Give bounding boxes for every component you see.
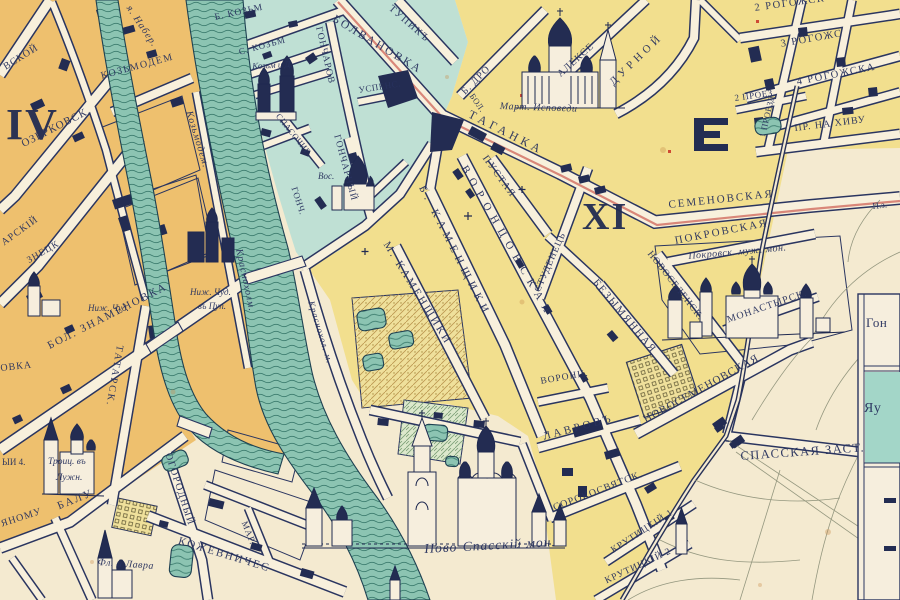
map-stage: IVXIВСКОЙОЗЕРКОВСК.КОЗЬМОДЕМя. Набер.Коз… xyxy=(0,0,900,600)
inset-sheet-index xyxy=(858,294,900,600)
map-canvas xyxy=(0,0,900,600)
